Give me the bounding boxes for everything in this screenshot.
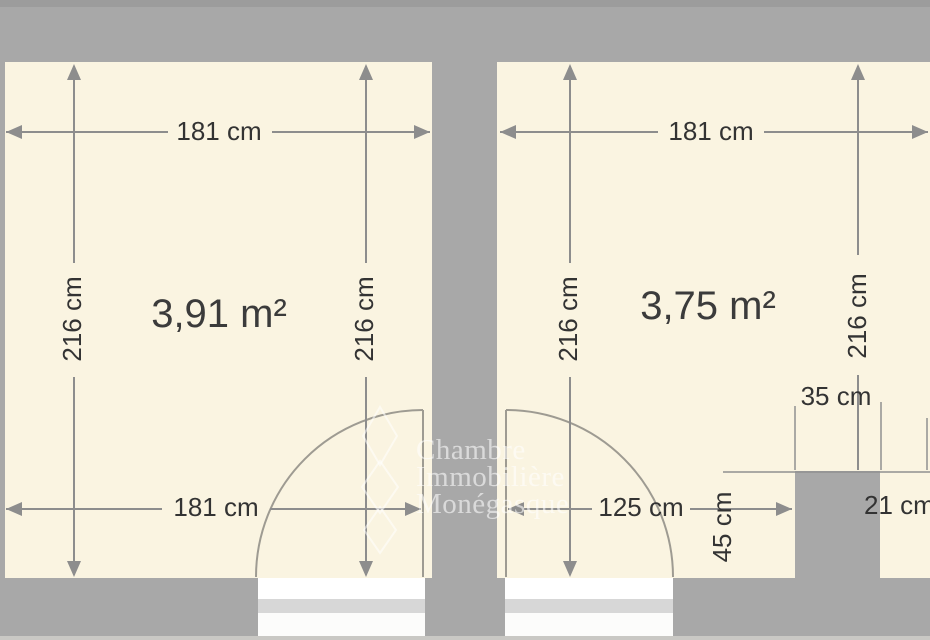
watermark-line: Immobilière xyxy=(416,464,569,491)
left-door-arc xyxy=(256,410,423,577)
arrowhead xyxy=(359,64,373,80)
floor-plan: 181 cm 181 cm 216 cm 216 cm 3,91 m² 181 … xyxy=(0,0,930,640)
right-room-top-width-label: 181 cm xyxy=(668,118,753,144)
arrowhead xyxy=(6,125,22,139)
left-room-area-label: 3,91 m² xyxy=(151,294,287,334)
left-room-left-height-label: 216 cm xyxy=(59,276,85,361)
right-room-left-height-label: 216 cm xyxy=(555,276,581,361)
right-room-right-height-label: 216 cm xyxy=(844,273,870,358)
left-room-bottom-width-label: 181 cm xyxy=(173,494,258,520)
watermark-logo-diamonds xyxy=(362,407,398,553)
diamond-icon xyxy=(362,461,398,513)
left-room-right-height-label: 216 cm xyxy=(351,276,377,361)
arrowhead xyxy=(563,64,577,80)
left-room-top-width-label: 181 cm xyxy=(176,118,261,144)
right-gap-label: 21 cm xyxy=(864,492,930,518)
pillar-depth-label: 45 cm xyxy=(709,492,735,563)
watermark-line: Monégasque xyxy=(416,491,569,518)
arrowhead xyxy=(359,561,373,577)
arrowhead xyxy=(67,561,81,577)
arrowhead xyxy=(6,502,22,516)
pillar-width-label: 35 cm xyxy=(801,383,872,409)
arrowhead xyxy=(912,125,928,139)
dimension-linework xyxy=(0,0,930,640)
watermark-line: Chambre xyxy=(416,437,569,464)
arrowhead xyxy=(414,125,430,139)
right-room-area-label: 3,75 m² xyxy=(640,286,776,326)
arrowhead xyxy=(563,561,577,577)
arrowhead xyxy=(67,64,81,80)
watermark-text: Chambre Immobilière Monégasque xyxy=(416,437,569,518)
extension-lines xyxy=(723,402,930,472)
arrowhead xyxy=(776,502,792,516)
arrowhead xyxy=(500,125,516,139)
arrowhead xyxy=(851,64,865,80)
door-clearance-label: 125 cm xyxy=(598,494,683,520)
